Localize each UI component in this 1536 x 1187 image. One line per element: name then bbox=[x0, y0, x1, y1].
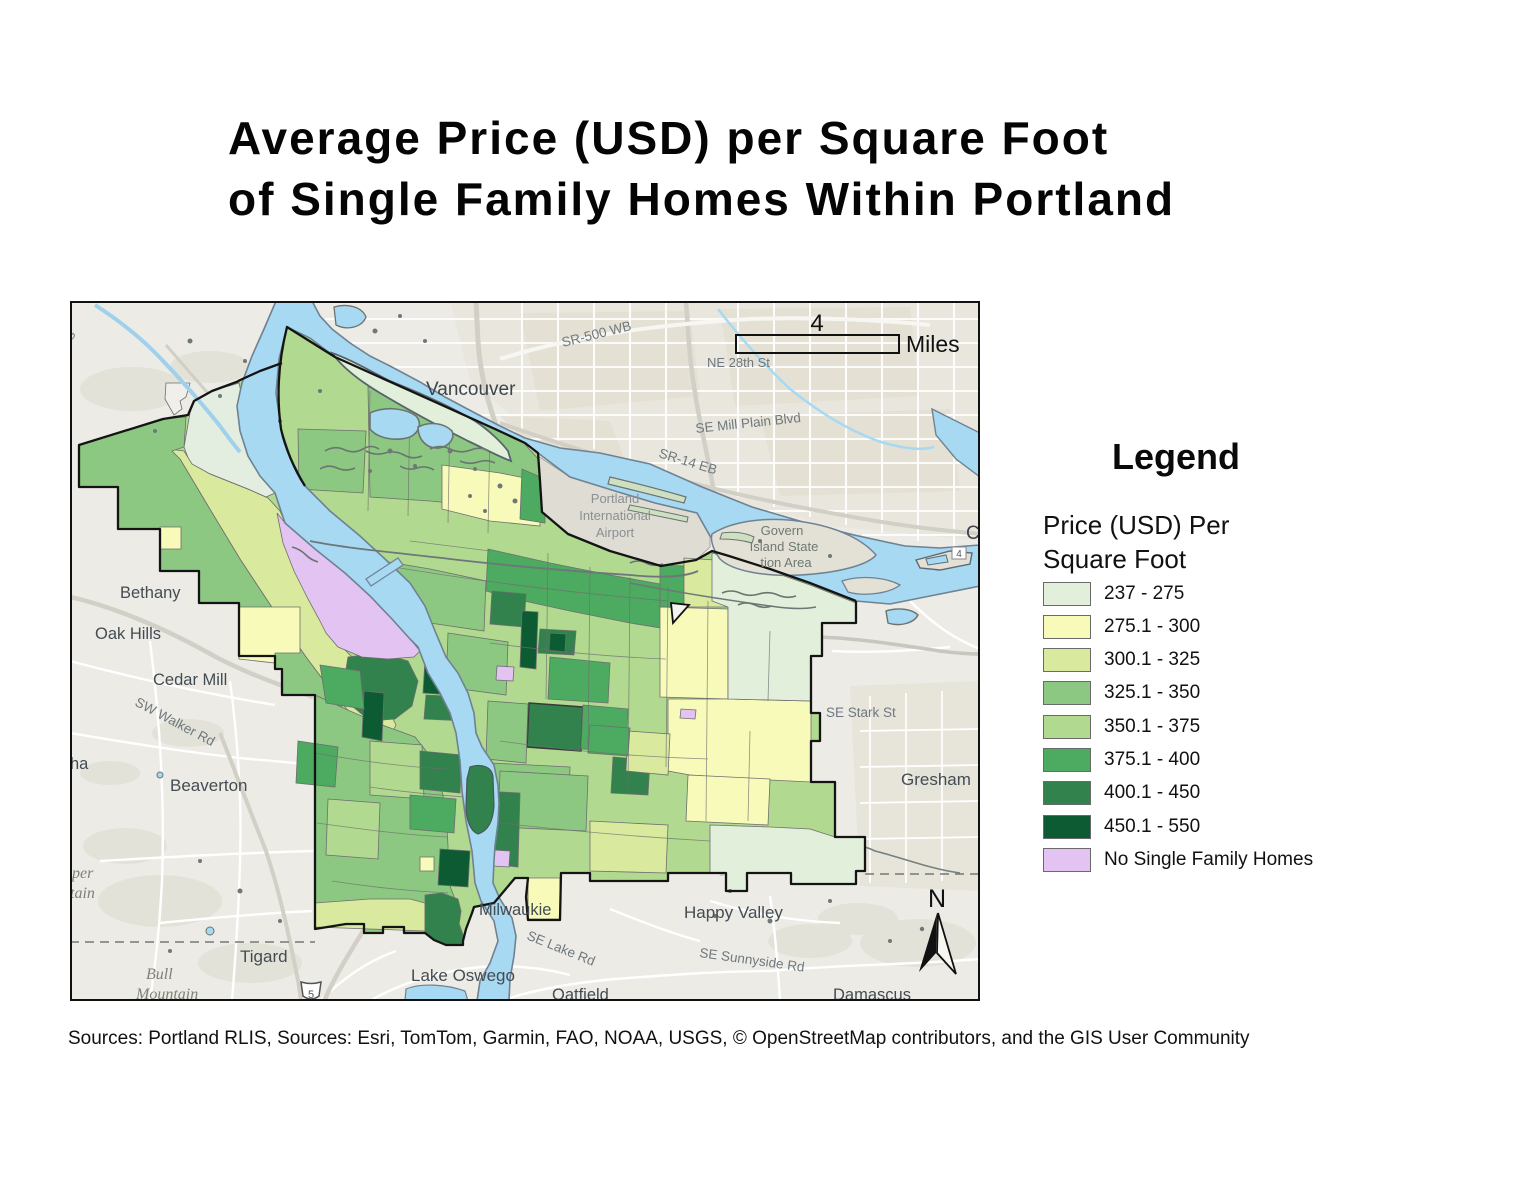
svg-text:4: 4 bbox=[956, 549, 962, 560]
svg-text:Airport: Airport bbox=[596, 525, 635, 540]
svg-text:Bethany: Bethany bbox=[120, 584, 181, 602]
svg-text:Oatfield: Oatfield bbox=[552, 986, 609, 1001]
svg-text:tain: tain bbox=[70, 885, 95, 902]
svg-text:NE 28th St: NE 28th St bbox=[707, 355, 770, 370]
svg-text:Milwaukie: Milwaukie bbox=[479, 901, 551, 919]
svg-text:Happy Valley: Happy Valley bbox=[684, 903, 783, 922]
svg-text:Lake Oswego: Lake Oswego bbox=[411, 966, 515, 985]
svg-text:tion Area: tion Area bbox=[760, 555, 812, 570]
svg-text:per: per bbox=[71, 865, 94, 882]
svg-text:Miles: Miles bbox=[906, 331, 960, 357]
svg-text:International: International bbox=[579, 508, 651, 523]
svg-text:Govern: Govern bbox=[761, 523, 804, 538]
svg-text:Cedar Mill: Cedar Mill bbox=[153, 671, 227, 689]
svg-text:C: C bbox=[966, 523, 980, 544]
svg-text:Damascus: Damascus bbox=[833, 986, 911, 1001]
svg-text:Island State: Island State bbox=[750, 539, 819, 554]
svg-text:ha: ha bbox=[70, 755, 89, 773]
svg-text:Beaverton: Beaverton bbox=[170, 776, 248, 795]
svg-text:Oak Hills: Oak Hills bbox=[95, 625, 161, 643]
svg-text:Tigard: Tigard bbox=[240, 947, 288, 966]
svg-text:SE Stark St: SE Stark St bbox=[826, 705, 896, 720]
svg-text:Portland: Portland bbox=[591, 491, 639, 506]
svg-text:Vancouver: Vancouver bbox=[426, 379, 516, 400]
svg-text:Gresham: Gresham bbox=[901, 770, 971, 789]
svg-text:N: N bbox=[928, 885, 946, 913]
svg-text:4: 4 bbox=[810, 310, 823, 337]
svg-text:Bull: Bull bbox=[146, 966, 173, 983]
svg-text:Mountain: Mountain bbox=[135, 986, 198, 1001]
